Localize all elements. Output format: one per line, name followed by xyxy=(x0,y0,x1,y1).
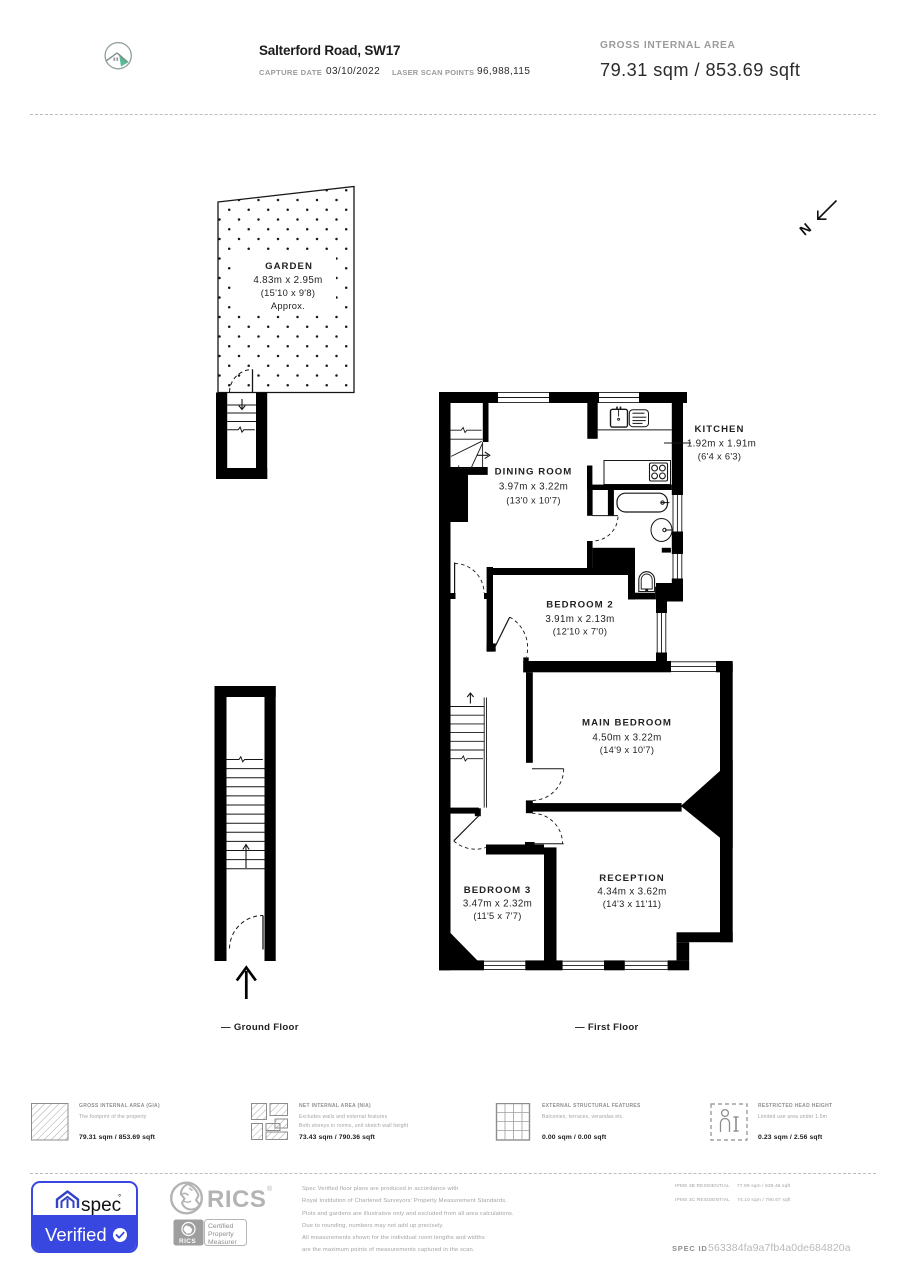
svg-text:KITCHEN: KITCHEN xyxy=(695,424,745,435)
svg-text:4.34m x 3.62m: 4.34m x 3.62m xyxy=(597,887,666,898)
svg-text:3.97m x 3.22m: 3.97m x 3.22m xyxy=(499,482,568,493)
svg-text:— Ground Floor: — Ground Floor xyxy=(221,1022,299,1033)
svg-text:(14'3 x 11'11): (14'3 x 11'11) xyxy=(603,899,662,909)
svg-text:(13'0 x 10'7): (13'0 x 10'7) xyxy=(506,496,560,506)
svg-text:°: ° xyxy=(118,1193,121,1202)
svg-text:N: N xyxy=(796,220,814,239)
svg-text:RECEPTION: RECEPTION xyxy=(599,873,664,884)
svg-text:Approx.: Approx. xyxy=(271,301,305,311)
svg-text:Measurer: Measurer xyxy=(208,1239,237,1246)
svg-text:Verified: Verified xyxy=(45,1224,107,1245)
svg-text:RICS: RICS xyxy=(207,1186,266,1213)
svg-text:BEDROOM 3: BEDROOM 3 xyxy=(464,885,532,896)
svg-text:®: ® xyxy=(267,1185,273,1193)
svg-text:Certified: Certified xyxy=(208,1223,234,1230)
svg-text:Property: Property xyxy=(208,1231,234,1238)
svg-text:4.83m x 2.95m: 4.83m x 2.95m xyxy=(253,275,322,286)
svg-text:spec: spec xyxy=(81,1195,121,1216)
svg-text:— First Floor: — First Floor xyxy=(575,1022,639,1033)
svg-text:DINING ROOM: DINING ROOM xyxy=(495,467,573,478)
svg-text:BEDROOM 2: BEDROOM 2 xyxy=(546,600,614,611)
svg-text:(12'10 x 7'0): (12'10 x 7'0) xyxy=(553,627,607,637)
svg-text:(6'4 x 6'3): (6'4 x 6'3) xyxy=(698,452,742,462)
svg-text:RICS: RICS xyxy=(179,1238,196,1245)
svg-text:3.47m x 2.32m: 3.47m x 2.32m xyxy=(463,899,532,910)
svg-text:GARDEN: GARDEN xyxy=(265,261,313,272)
svg-text:3.91m x 2.13m: 3.91m x 2.13m xyxy=(545,614,614,625)
svg-text:1.92m x 1.91m: 1.92m x 1.91m xyxy=(687,439,756,450)
svg-text:MAIN BEDROOM: MAIN BEDROOM xyxy=(582,718,672,729)
svg-text:(14'9 x 10'7): (14'9 x 10'7) xyxy=(600,745,654,755)
svg-text:(11'5 x 7'7): (11'5 x 7'7) xyxy=(473,911,521,921)
svg-text:(15'10 x 9'8): (15'10 x 9'8) xyxy=(261,288,315,298)
svg-text:4.50m x 3.22m: 4.50m x 3.22m xyxy=(592,733,661,744)
